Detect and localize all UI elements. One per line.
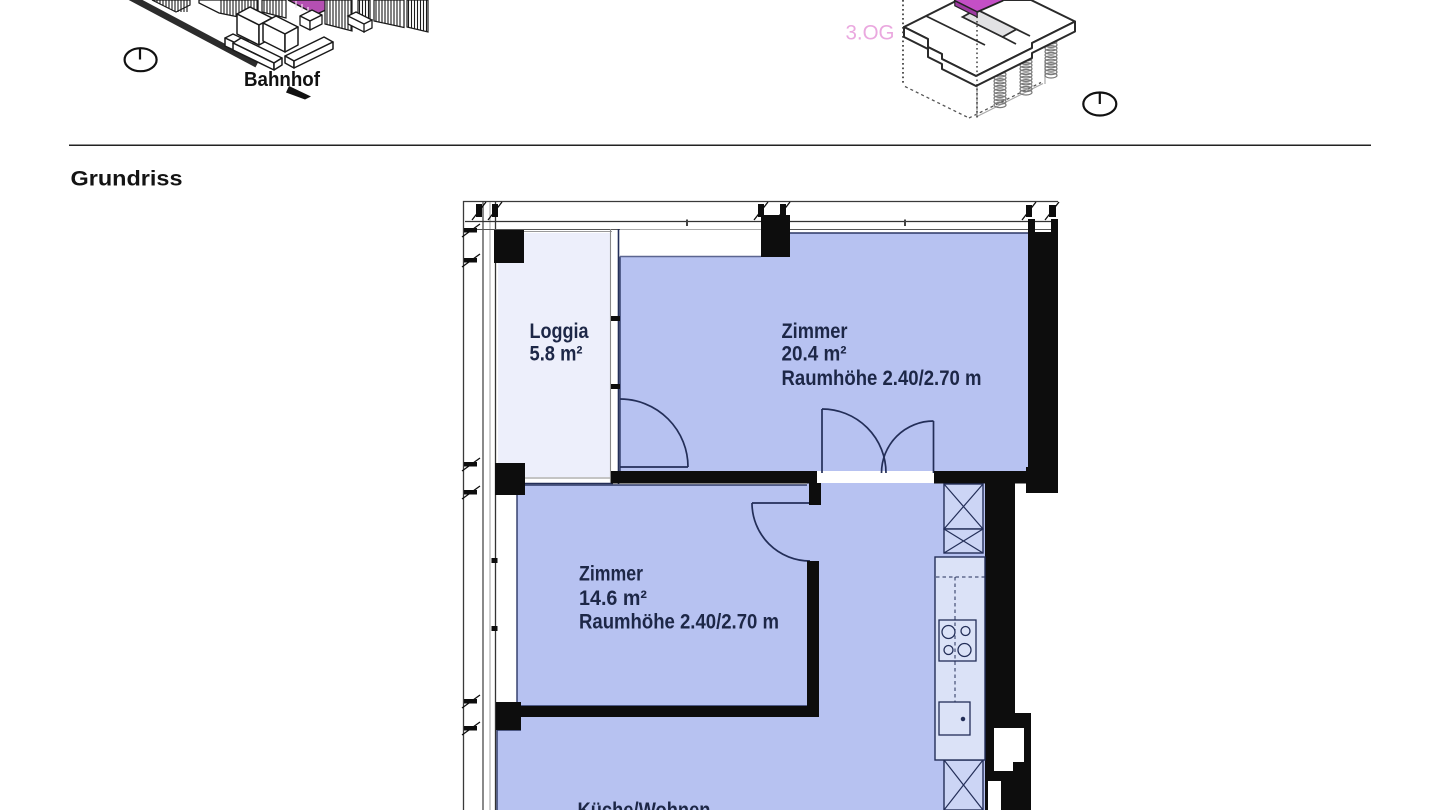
svg-text:Zimmer: Zimmer	[579, 563, 643, 586]
svg-text:5.8 m²: 5.8 m²	[530, 343, 583, 366]
svg-text:Zimmer: Zimmer	[782, 320, 848, 343]
svg-text:Küche/Wohnen: Küche/Wohnen	[578, 799, 711, 810]
svg-text:Bahnhof: Bahnhof	[244, 69, 320, 91]
svg-text:20.4 m²: 20.4 m²	[782, 343, 847, 366]
svg-text:3.OG: 3.OG	[846, 22, 895, 45]
svg-text:14.6 m²: 14.6 m²	[579, 587, 647, 610]
svg-text:Raumhöhe 2.40/2.70 m: Raumhöhe 2.40/2.70 m	[782, 367, 982, 390]
svg-text:Loggia: Loggia	[530, 320, 589, 343]
svg-text:Grundriss: Grundriss	[71, 168, 183, 191]
svg-text:Raumhöhe 2.40/2.70 m: Raumhöhe 2.40/2.70 m	[579, 611, 779, 634]
